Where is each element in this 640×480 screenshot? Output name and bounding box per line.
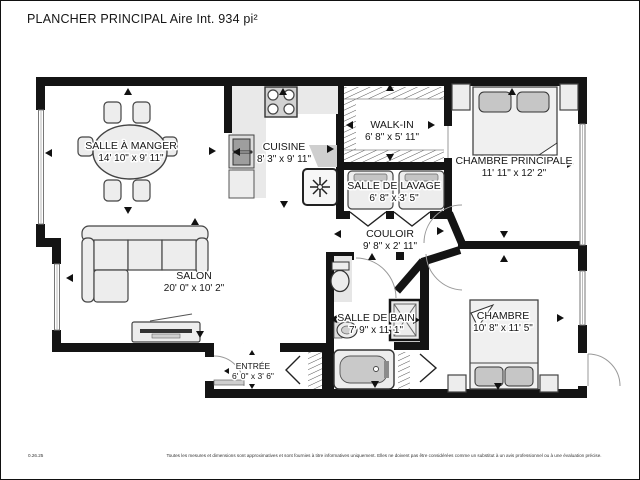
room-label-hall: COULOIR [366,228,414,240]
bathtub-icon [334,350,394,389]
nightstand [452,84,470,110]
walkin-rod-top [344,87,444,99]
chair [133,102,150,123]
bedroom-closet-rod [398,352,410,389]
room-dims-kitchen: 8' 3" x 9' 11" [257,154,312,165]
room-label-living: SALON [176,270,212,282]
floor-plan-page: PLANCHER PRINCIPAL Aire Int. 934 pi² [0,0,640,480]
room-dims-dining: 14' 10" x 9' 11" [98,153,164,164]
page-title: PLANCHER PRINCIPAL Aire Int. 934 pi² [27,12,258,26]
window-bedroom-right [580,271,585,325]
nightstand [448,375,466,392]
window-master-right [580,124,585,245]
room-dims-laundry: 6' 8" x 3' 5" [369,193,419,204]
chair [104,102,121,123]
room-label-bath: SALLE DE BAIN [337,312,415,324]
room-label-master: CHAMBRE PRINCIPALE [455,155,572,167]
window-dining-left [39,110,44,224]
room-label-laundry: SALLE DE LAVAGE [347,180,441,192]
toilet-icon [331,262,349,292]
room-label-dining: SALLE À MANGER [85,139,177,152]
footer-disclaimer: Toutes les mesures et dimensions sont ap… [166,453,601,458]
floor-plan-canvas: PLANCHER PRINCIPAL Aire Int. 934 pi² [0,0,640,480]
dining-table [93,125,167,179]
kitchen-sink-icon [229,135,254,198]
room-dims-hall: 9' 8" x 2' 11" [363,241,418,252]
window-living-left [55,264,60,330]
master-bed [473,87,557,155]
footer-date: 0.26.25 [28,453,44,458]
room-dims-bath: 7' 9" x 11' 1" [349,325,404,336]
room-label-entry: ENTRÉE [236,361,271,371]
walkin-rod-bottom [344,150,444,162]
entry-closet-rod [308,352,322,389]
room-label-kitchen: CUISINE [263,141,306,153]
room-dims-living: 20' 0" x 10' 2" [164,283,225,294]
room-dims-bedroom: 10' 8" x 11' 5" [473,323,533,334]
chair [133,180,150,201]
room-dims-master: 11' 11" x 12' 2" [482,168,547,179]
room-dims-walkin: 6' 8" x 5' 11" [365,132,420,143]
room-label-bedroom: CHAMBRE [477,310,530,322]
nightstand [560,84,578,110]
room-dims-entry: 6' 0" x 3' 6" [232,371,274,381]
room-label-walkin: WALK-IN [370,119,413,131]
hvac-fan-icon [303,169,337,205]
chair [104,180,121,201]
nightstand [540,375,558,392]
